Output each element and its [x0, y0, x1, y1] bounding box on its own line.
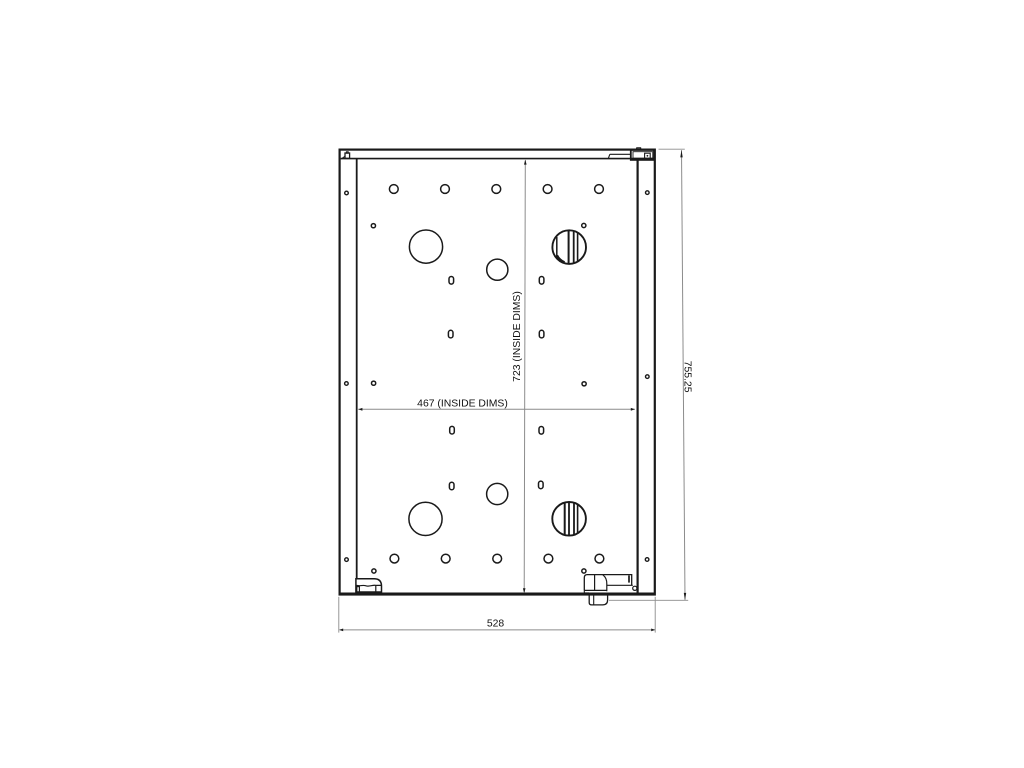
svg-text:467 (INSIDE DIMS): 467 (INSIDE DIMS)	[417, 398, 508, 409]
svg-text:528: 528	[487, 618, 505, 629]
svg-text:723 (INSIDE DIMS): 723 (INSIDE DIMS)	[512, 291, 523, 382]
svg-text:755.25: 755.25	[682, 361, 693, 393]
